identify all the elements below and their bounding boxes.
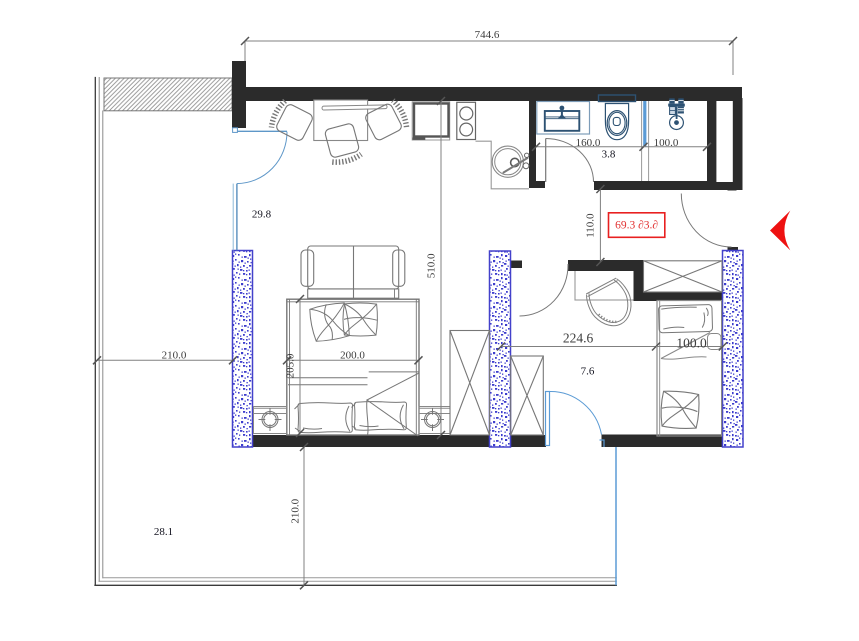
svg-text:3.8: 3.8 — [602, 149, 616, 161]
svg-text:7.6: 7.6 — [581, 365, 595, 377]
svg-text:110.0: 110.0 — [584, 213, 596, 238]
svg-text:744.6: 744.6 — [475, 29, 500, 41]
svg-text:510.0: 510.0 — [426, 253, 438, 278]
svg-text:210.0: 210.0 — [290, 498, 302, 523]
svg-text:200.0: 200.0 — [340, 349, 365, 361]
svg-text:205.0: 205.0 — [285, 353, 297, 378]
svg-text:100.0: 100.0 — [654, 137, 679, 149]
svg-text:28.1: 28.1 — [154, 526, 173, 538]
svg-text:69.3 ∂3.∂: 69.3 ∂3.∂ — [615, 220, 658, 232]
svg-text:160.0: 160.0 — [576, 137, 601, 149]
svg-text:29.8: 29.8 — [252, 209, 272, 221]
svg-text:224.6: 224.6 — [563, 331, 594, 346]
svg-text:100.0: 100.0 — [676, 335, 707, 350]
svg-text:210.0: 210.0 — [162, 349, 187, 361]
